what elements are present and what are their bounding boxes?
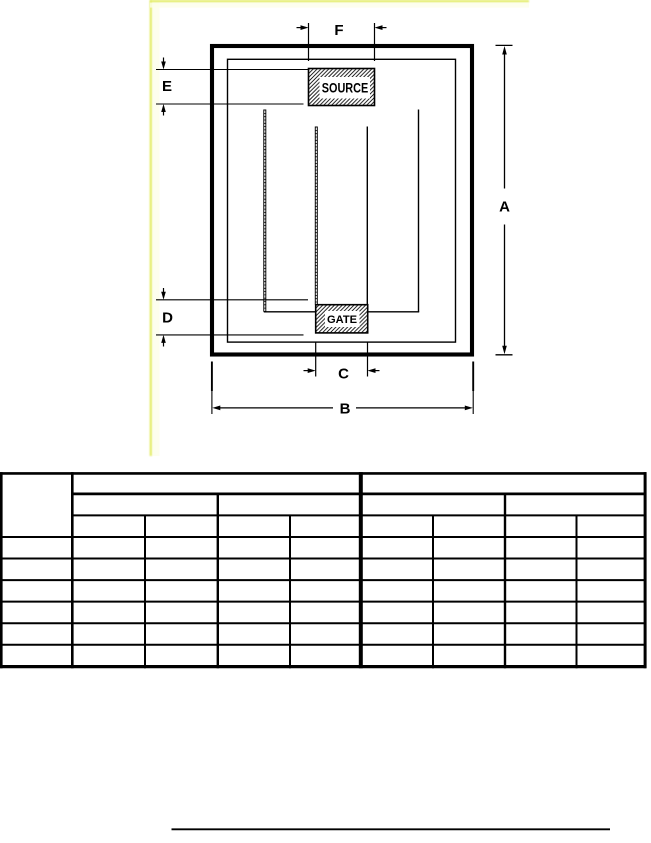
svg-text:F: F bbox=[334, 22, 343, 39]
svg-text:E: E bbox=[162, 78, 172, 95]
svg-text:SOURCE: SOURCE bbox=[322, 81, 369, 96]
svg-text:A: A bbox=[499, 198, 510, 215]
svg-text:B: B bbox=[340, 400, 351, 417]
svg-text:C: C bbox=[338, 365, 349, 382]
svg-text:GATE: GATE bbox=[327, 314, 357, 326]
svg-text:D: D bbox=[162, 309, 173, 326]
